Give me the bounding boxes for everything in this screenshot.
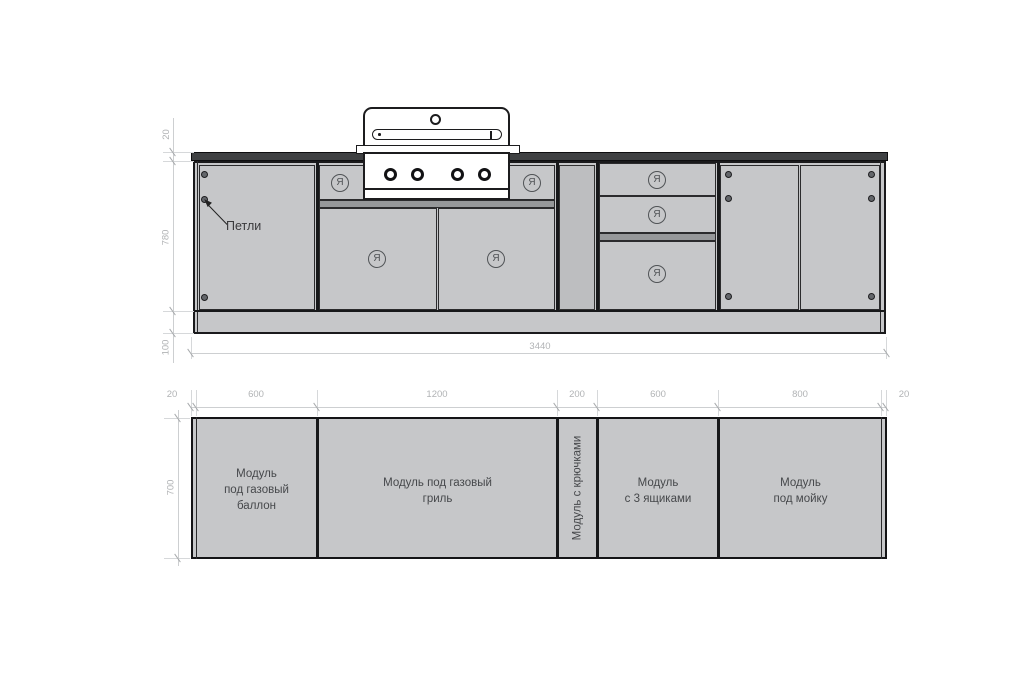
module-label-sink: под мойку: [720, 491, 881, 507]
module-label-gas-bottle: баллон: [197, 498, 316, 514]
dim-extension: [196, 390, 197, 416]
dim-extension: [718, 390, 719, 416]
dim-label-segment: 20: [160, 389, 184, 400]
dim-label-depth: 700: [161, 474, 181, 500]
dim-label-segment: 600: [643, 389, 673, 400]
module-label-drawers: Модуль: [599, 475, 717, 491]
dim-extension: [557, 390, 558, 416]
dim-label-segment: 1200: [419, 389, 455, 400]
dim-extension: [886, 390, 887, 416]
plan-right-wall-line: [881, 417, 882, 559]
module-label-grill: Модуль под газовый: [319, 475, 556, 491]
dim-line-plan-top: [191, 407, 887, 408]
dim-label-segment: 600: [241, 389, 271, 400]
dim-label-segment: 20: [892, 389, 916, 400]
module-label-gas-bottle: Модуль: [197, 466, 316, 482]
module-label-drawers: с 3 ящиками: [599, 491, 717, 507]
dim-label-segment: 200: [562, 389, 592, 400]
plan-view: Модуль под газовый баллон Модуль под газ…: [0, 0, 1024, 683]
module-label-sink: Модуль: [720, 475, 881, 491]
dim-label-segment: 800: [785, 389, 815, 400]
drawing-canvas: Я Я Я Я Я Я Я Петли 20 780 100 3440: [0, 0, 1024, 683]
module-label-hooks: Модуль с крючками: [559, 425, 595, 550]
module-label-gas-bottle: под газовый: [197, 482, 316, 498]
module-label-grill: гриль: [319, 491, 556, 507]
dim-extension: [317, 390, 318, 416]
dim-extension: [597, 390, 598, 416]
